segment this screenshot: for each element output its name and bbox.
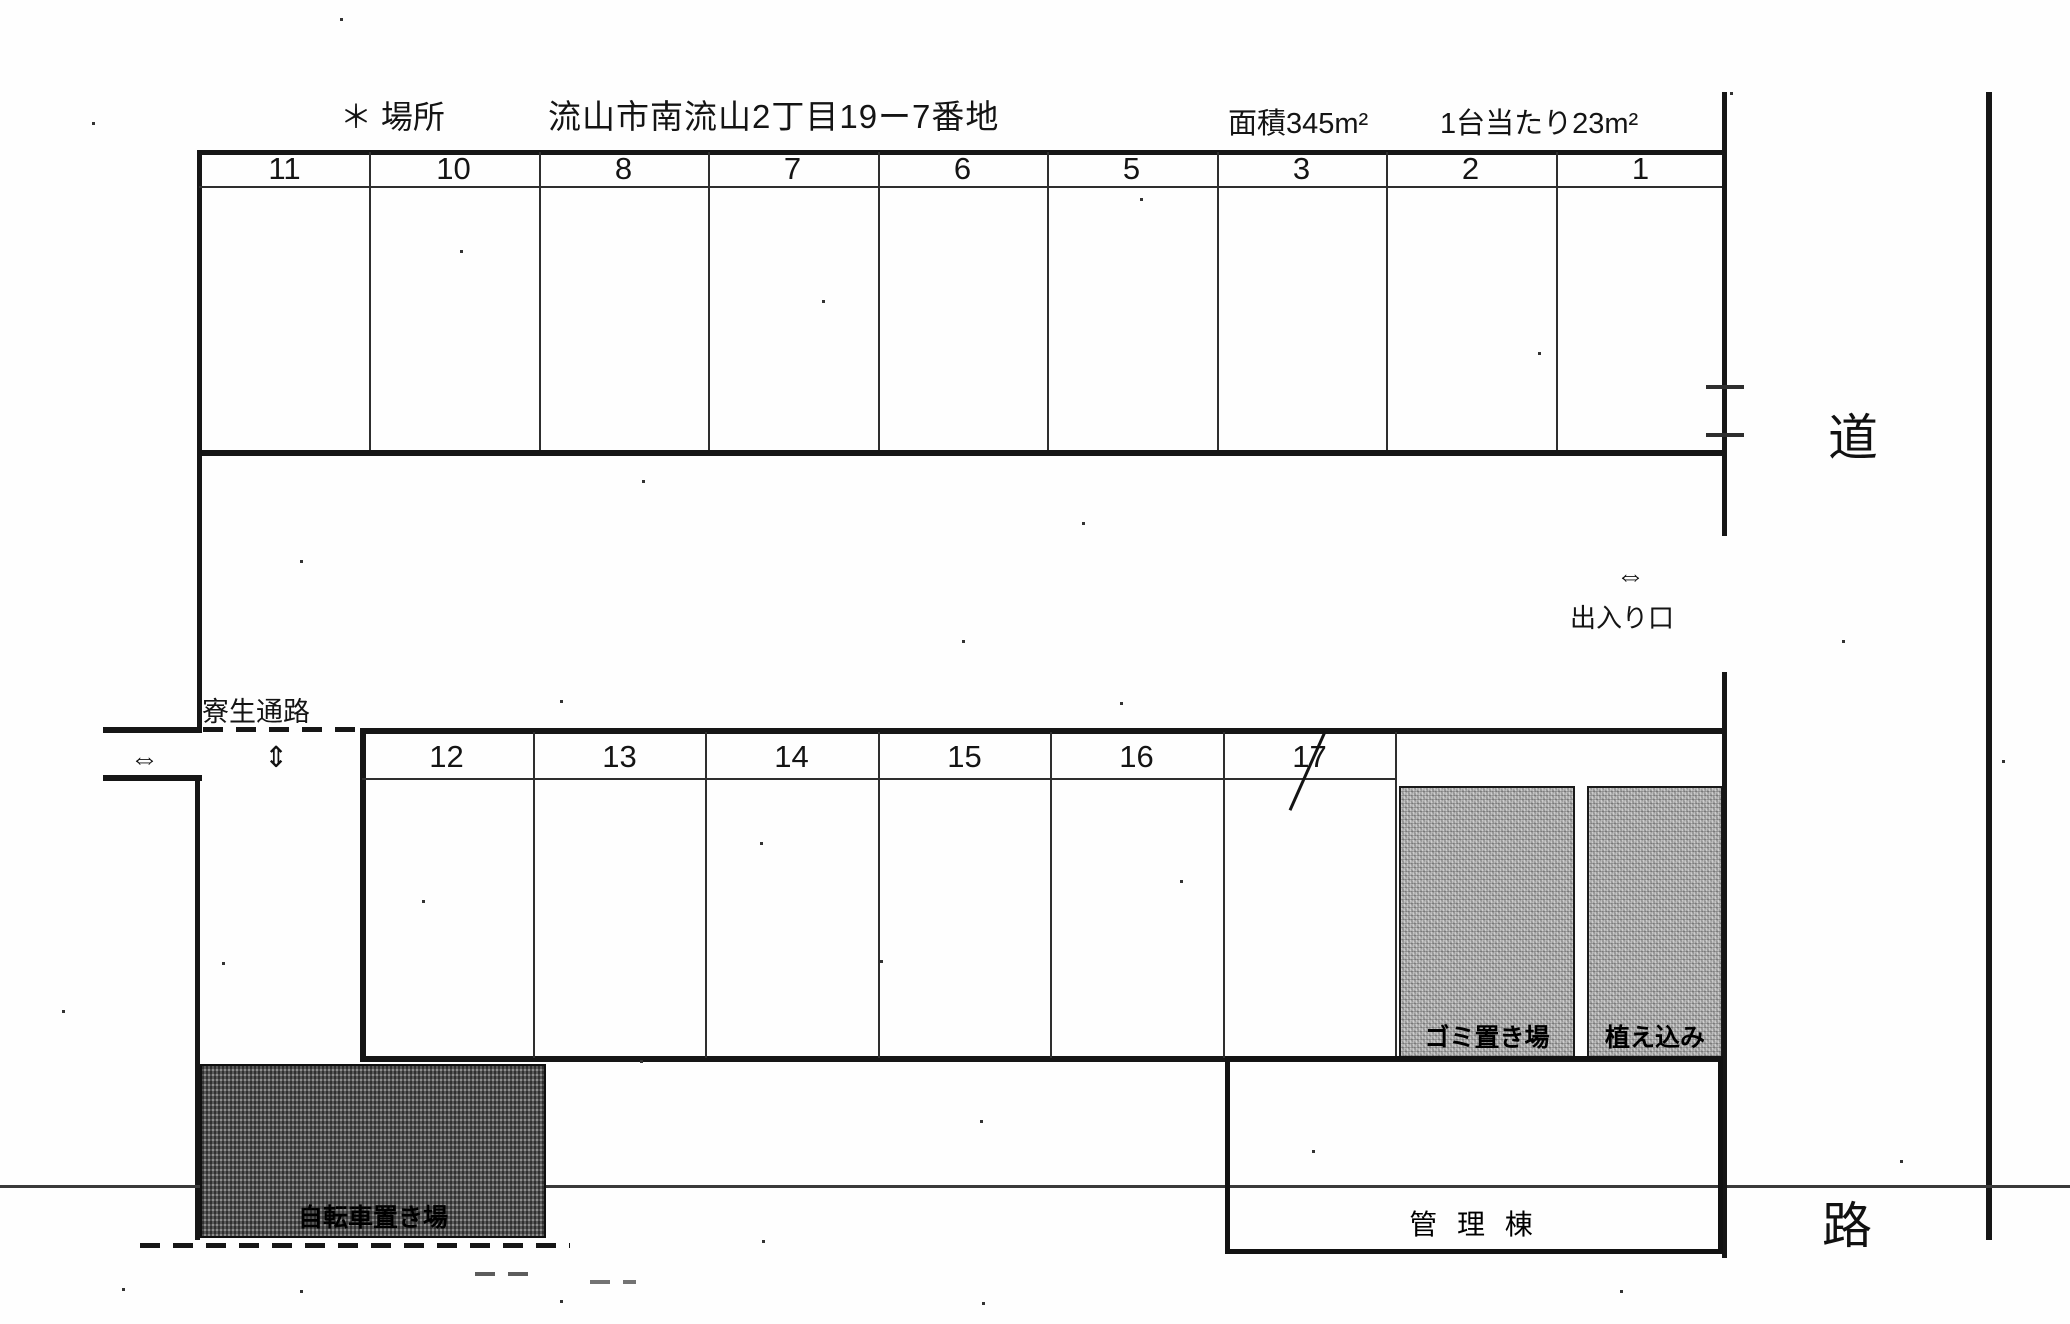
parking-space: 15 bbox=[878, 740, 1051, 774]
bottom-column-divider bbox=[878, 732, 880, 1058]
planting-area-label: 植え込み bbox=[1589, 1018, 1721, 1054]
bicycle-parking-area: 自転車置き場 bbox=[200, 1064, 546, 1238]
entrance-arrow-icon: ⇔ bbox=[1616, 560, 1645, 593]
parking-space: 1 bbox=[1556, 152, 1725, 186]
parking-space: 11 bbox=[200, 152, 369, 186]
road-label-bottom: 路 bbox=[1822, 1186, 1872, 1258]
property-road-line-upper bbox=[1722, 92, 1727, 536]
road-outer-line bbox=[1986, 92, 1992, 1240]
management-building: 管 理 棟 bbox=[1225, 1056, 1723, 1254]
top-column-divider bbox=[1047, 152, 1049, 450]
passage-arrow-vertical-icon: ⇕ bbox=[264, 740, 288, 775]
parking-space: 8 bbox=[539, 152, 708, 186]
top-table-bottom-border bbox=[197, 450, 1727, 456]
bicycle-area-base-line bbox=[140, 1243, 570, 1248]
top-column-divider bbox=[1556, 152, 1558, 450]
parking-space: 3 bbox=[1217, 152, 1386, 186]
parking-space: 6 bbox=[878, 152, 1047, 186]
parking-space: 10 bbox=[369, 152, 538, 186]
top-column-divider bbox=[369, 152, 371, 450]
area-per-car: 1台当たり23m² bbox=[1440, 100, 1638, 142]
passage-label: 寮生通路 bbox=[202, 690, 310, 729]
entrance-label: 出入り口 bbox=[1570, 598, 1674, 635]
garbage-area-label: ゴミ置き場 bbox=[1401, 1018, 1573, 1054]
parking-space: 14 bbox=[705, 740, 878, 774]
road-label-top: 道 bbox=[1828, 398, 1878, 470]
top-table-left-border bbox=[197, 150, 202, 456]
bottom-column-divider bbox=[705, 732, 707, 1058]
total-area: 面積345m² bbox=[1228, 100, 1368, 142]
scan-specks bbox=[0, 0, 3, 3]
bicycle-parking-label: 自転車置き場 bbox=[202, 1198, 544, 1234]
parking-space: 16 bbox=[1050, 740, 1223, 774]
corridor-top-line bbox=[103, 727, 202, 733]
top-table-number-row-line bbox=[199, 186, 1723, 188]
top-column-divider bbox=[878, 152, 880, 450]
scan-dash bbox=[475, 1272, 535, 1276]
site-plan: ＊ 場所 流山市南流山2丁目19ー7番地 面積345m² 1台当たり23m² 1… bbox=[0, 0, 2070, 1324]
parking-space: 12 bbox=[360, 740, 533, 774]
parking-space: 7 bbox=[708, 152, 877, 186]
parking-space: 13 bbox=[533, 740, 706, 774]
bottom-column-divider bbox=[1050, 732, 1052, 1058]
top-column-divider bbox=[708, 152, 710, 450]
location-label: ＊ 場所 bbox=[340, 92, 445, 138]
garbage-area: ゴミ置き場 bbox=[1399, 786, 1575, 1058]
bottom-column-divider bbox=[1223, 732, 1225, 1058]
parking-space: 5 bbox=[1047, 152, 1216, 186]
passage-arrow-horizontal-icon: ⇔ bbox=[130, 743, 159, 776]
address: 流山市南流山2丁目19ー7番地 bbox=[548, 90, 999, 138]
scan-dash bbox=[590, 1280, 636, 1284]
bottom-table-top-border bbox=[360, 728, 1727, 734]
planting-area: 植え込み bbox=[1587, 786, 1723, 1058]
bottom-column-divider bbox=[1395, 732, 1397, 1058]
top-column-divider bbox=[539, 152, 541, 450]
top-column-divider bbox=[1386, 152, 1388, 450]
survey-tick bbox=[1706, 385, 1744, 389]
bottom-column-divider bbox=[533, 732, 535, 1058]
top-column-divider bbox=[1217, 152, 1219, 450]
parking-space: 2 bbox=[1386, 152, 1555, 186]
survey-tick bbox=[1706, 433, 1744, 437]
management-building-label: 管 理 棟 bbox=[1230, 1203, 1718, 1243]
